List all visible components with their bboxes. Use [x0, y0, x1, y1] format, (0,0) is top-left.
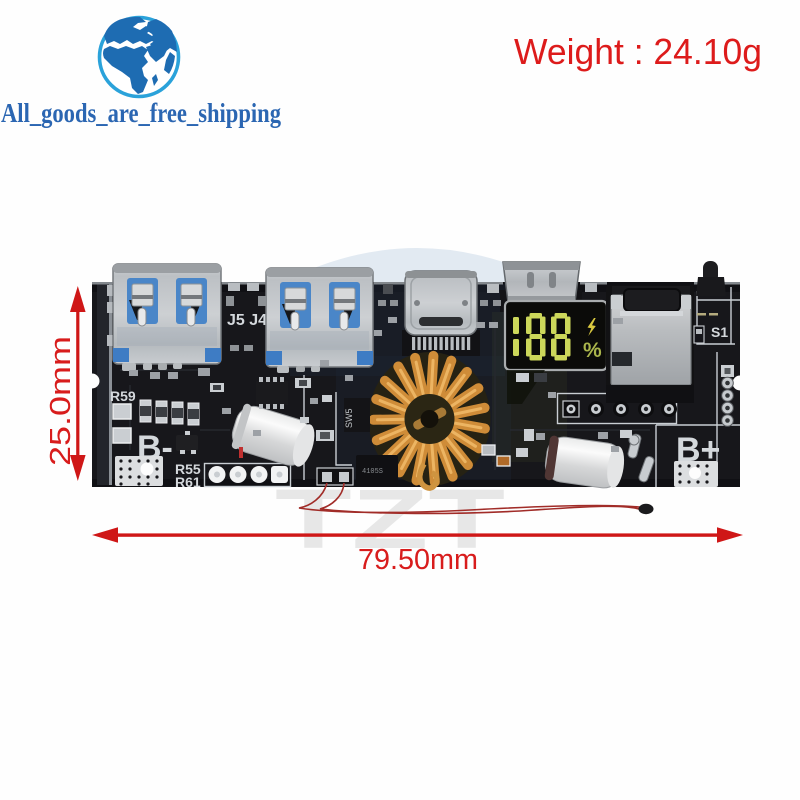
svg-text:SW5: SW5	[344, 408, 354, 428]
svg-text:Weight : 24.10g: Weight : 24.10g	[514, 31, 762, 72]
svg-text:S1: S1	[711, 324, 728, 340]
svg-text:%: %	[583, 339, 602, 362]
svg-text:79.50mm: 79.50mm	[358, 544, 478, 576]
svg-text:J5 J4: J5 J4	[227, 312, 267, 329]
svg-text:R59: R59	[110, 388, 136, 404]
svg-text:R61: R61	[175, 474, 201, 490]
svg-text:All_goods_are_free_shipping: All_goods_are_free_shipping	[1, 98, 281, 128]
svg-text:4105S: 4105S	[362, 468, 383, 476]
svg-text:25.0mm: 25.0mm	[45, 336, 77, 466]
